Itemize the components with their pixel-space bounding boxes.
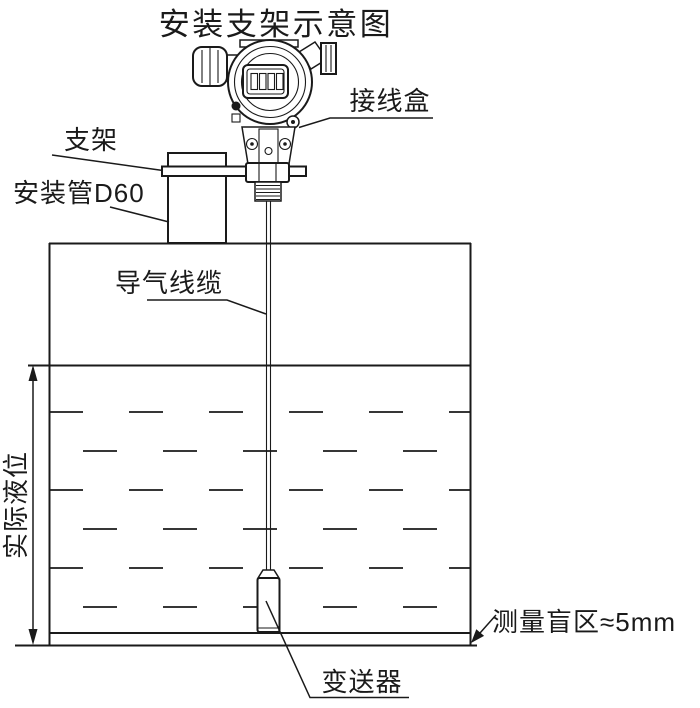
leader-mounting-pipe bbox=[110, 207, 169, 222]
air-cable-line bbox=[267, 200, 271, 572]
set-screw-dot bbox=[232, 102, 241, 111]
leader-junction-box bbox=[299, 118, 433, 128]
small-lug bbox=[232, 114, 240, 122]
label-blind-zone: 测量盲区≈5mm bbox=[492, 607, 676, 637]
leader-air-cable bbox=[147, 300, 266, 314]
leader-bracket bbox=[52, 155, 163, 171]
housing-bolt bbox=[287, 116, 299, 128]
diagram-svg: 安装支架示意图 接线盒 支架 安装管D60 导气线缆 实际液位 测量盲区≈5mm… bbox=[0, 0, 700, 708]
tank-outline bbox=[15, 243, 477, 646]
installation-diagram: 安装支架示意图 接线盒 支架 安装管D60 导气线缆 实际液位 测量盲区≈5mm… bbox=[0, 0, 700, 708]
label-air-cable: 导气线缆 bbox=[115, 268, 223, 298]
label-bracket: 支架 bbox=[64, 125, 118, 155]
hex-nut bbox=[246, 163, 289, 182]
label-transmitter: 变送器 bbox=[321, 667, 402, 697]
lcd-display-icon bbox=[243, 65, 288, 98]
label-actual-level: 实际液位 bbox=[1, 451, 31, 559]
yoke bbox=[242, 127, 295, 164]
label-mounting-pipe: 安装管D60 bbox=[13, 178, 145, 208]
page-title: 安装支架示意图 bbox=[159, 7, 394, 42]
threaded-connector bbox=[255, 182, 281, 201]
label-junction-box: 接线盒 bbox=[349, 86, 430, 116]
